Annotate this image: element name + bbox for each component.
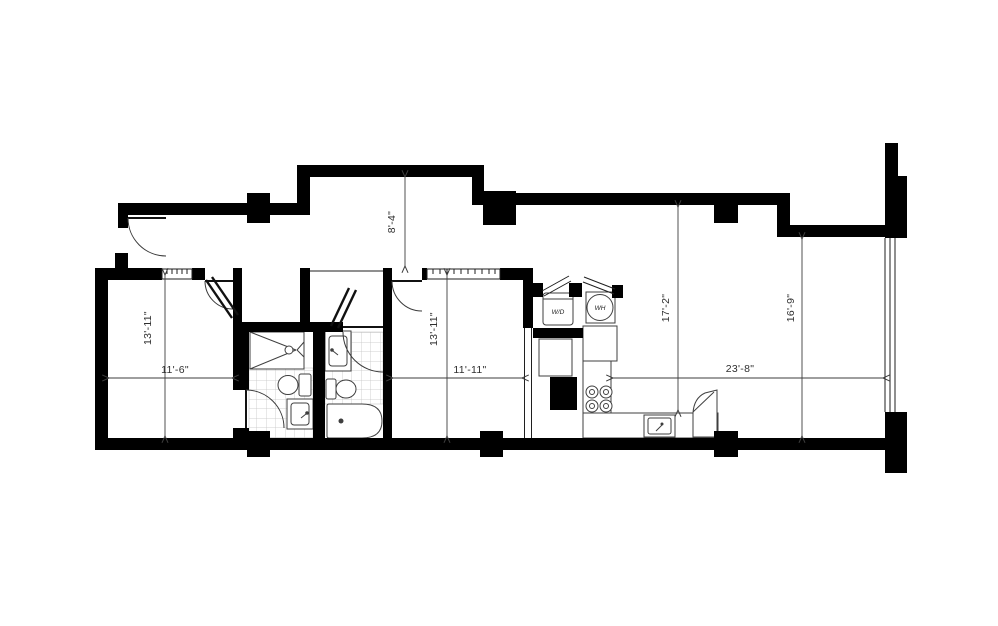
entry-door-icon xyxy=(128,218,166,256)
sink-vanity-icon xyxy=(287,399,313,429)
column xyxy=(480,431,503,457)
wall-hall-bottom xyxy=(233,322,343,332)
corner-cabinet-icon xyxy=(693,390,717,437)
column xyxy=(247,431,270,457)
kitchen-sink-icon xyxy=(644,415,675,437)
bed1-window-icon xyxy=(162,269,192,279)
wall-top-middle xyxy=(472,193,790,205)
wall-closet-right xyxy=(300,268,310,330)
wall-right-upper xyxy=(885,143,898,238)
closet-post xyxy=(569,283,582,297)
toilet-icon xyxy=(326,379,356,399)
closet-post xyxy=(612,285,623,298)
wall-top-left xyxy=(118,203,310,215)
wall-bath-separator xyxy=(313,322,325,448)
wall-bed2-left xyxy=(383,268,392,448)
column xyxy=(483,191,516,225)
wall-left xyxy=(95,268,108,450)
wall-bath1-left-a xyxy=(233,330,249,390)
dimension-label-bed2-width: 11'-11" xyxy=(453,364,486,376)
dimension-label-bed1-depth: 13'-11" xyxy=(142,311,154,345)
bathtub-icon xyxy=(327,404,382,438)
wall-bump-top xyxy=(297,165,484,177)
bed2-opening-lines xyxy=(525,328,532,438)
toilet-icon xyxy=(278,374,311,396)
wall-bed1-top-b xyxy=(192,268,205,280)
wall-bed2-top-a xyxy=(422,268,427,280)
shaft-block xyxy=(550,377,577,410)
wall-wd-closet-bottom xyxy=(533,328,583,338)
dimension-label-living-right: 16'-9" xyxy=(785,294,797,323)
floor-plan-page: W/D WH xyxy=(0,0,998,626)
column xyxy=(714,193,738,223)
washer-dryer-label: W/D xyxy=(552,309,565,316)
column xyxy=(247,193,270,223)
wall-bed1-top-a xyxy=(95,268,162,280)
column xyxy=(714,431,738,457)
water-heater-icon: WH xyxy=(586,292,615,323)
kitchen-cabinet xyxy=(539,339,572,376)
bed2-door-icon xyxy=(392,281,422,311)
water-heater-label: WH xyxy=(595,305,606,312)
shower-icon xyxy=(250,332,304,369)
dimension-label-living-width: 23'-8" xyxy=(726,363,755,375)
dimension-label-bed1-width: 11'-6" xyxy=(161,364,189,376)
dimension-label-bed2-depth: 13'-11" xyxy=(428,312,440,346)
wall-entry-stub xyxy=(115,253,128,270)
bed2-window-icon xyxy=(427,269,500,279)
wall-right-lower-block xyxy=(885,412,907,473)
dimension-label-living-left: 17'-2" xyxy=(660,294,672,323)
refrigerator-icon xyxy=(583,326,617,361)
closet-post xyxy=(533,283,543,297)
floor-plan-drawing: W/D WH xyxy=(0,0,998,626)
dimension-label-entry: 8'-4" xyxy=(386,211,398,233)
wall-bath1-left-b xyxy=(233,428,249,440)
wh-closet-door-icon xyxy=(583,277,615,294)
wall-right-upper-step xyxy=(898,176,907,238)
washer-dryer-icon: W/D xyxy=(543,293,573,325)
wall-bed1-right xyxy=(233,268,242,330)
wall-bed2-right xyxy=(523,268,533,328)
curtain-wall-window xyxy=(885,238,895,412)
sink-vanity-icon xyxy=(325,331,351,371)
